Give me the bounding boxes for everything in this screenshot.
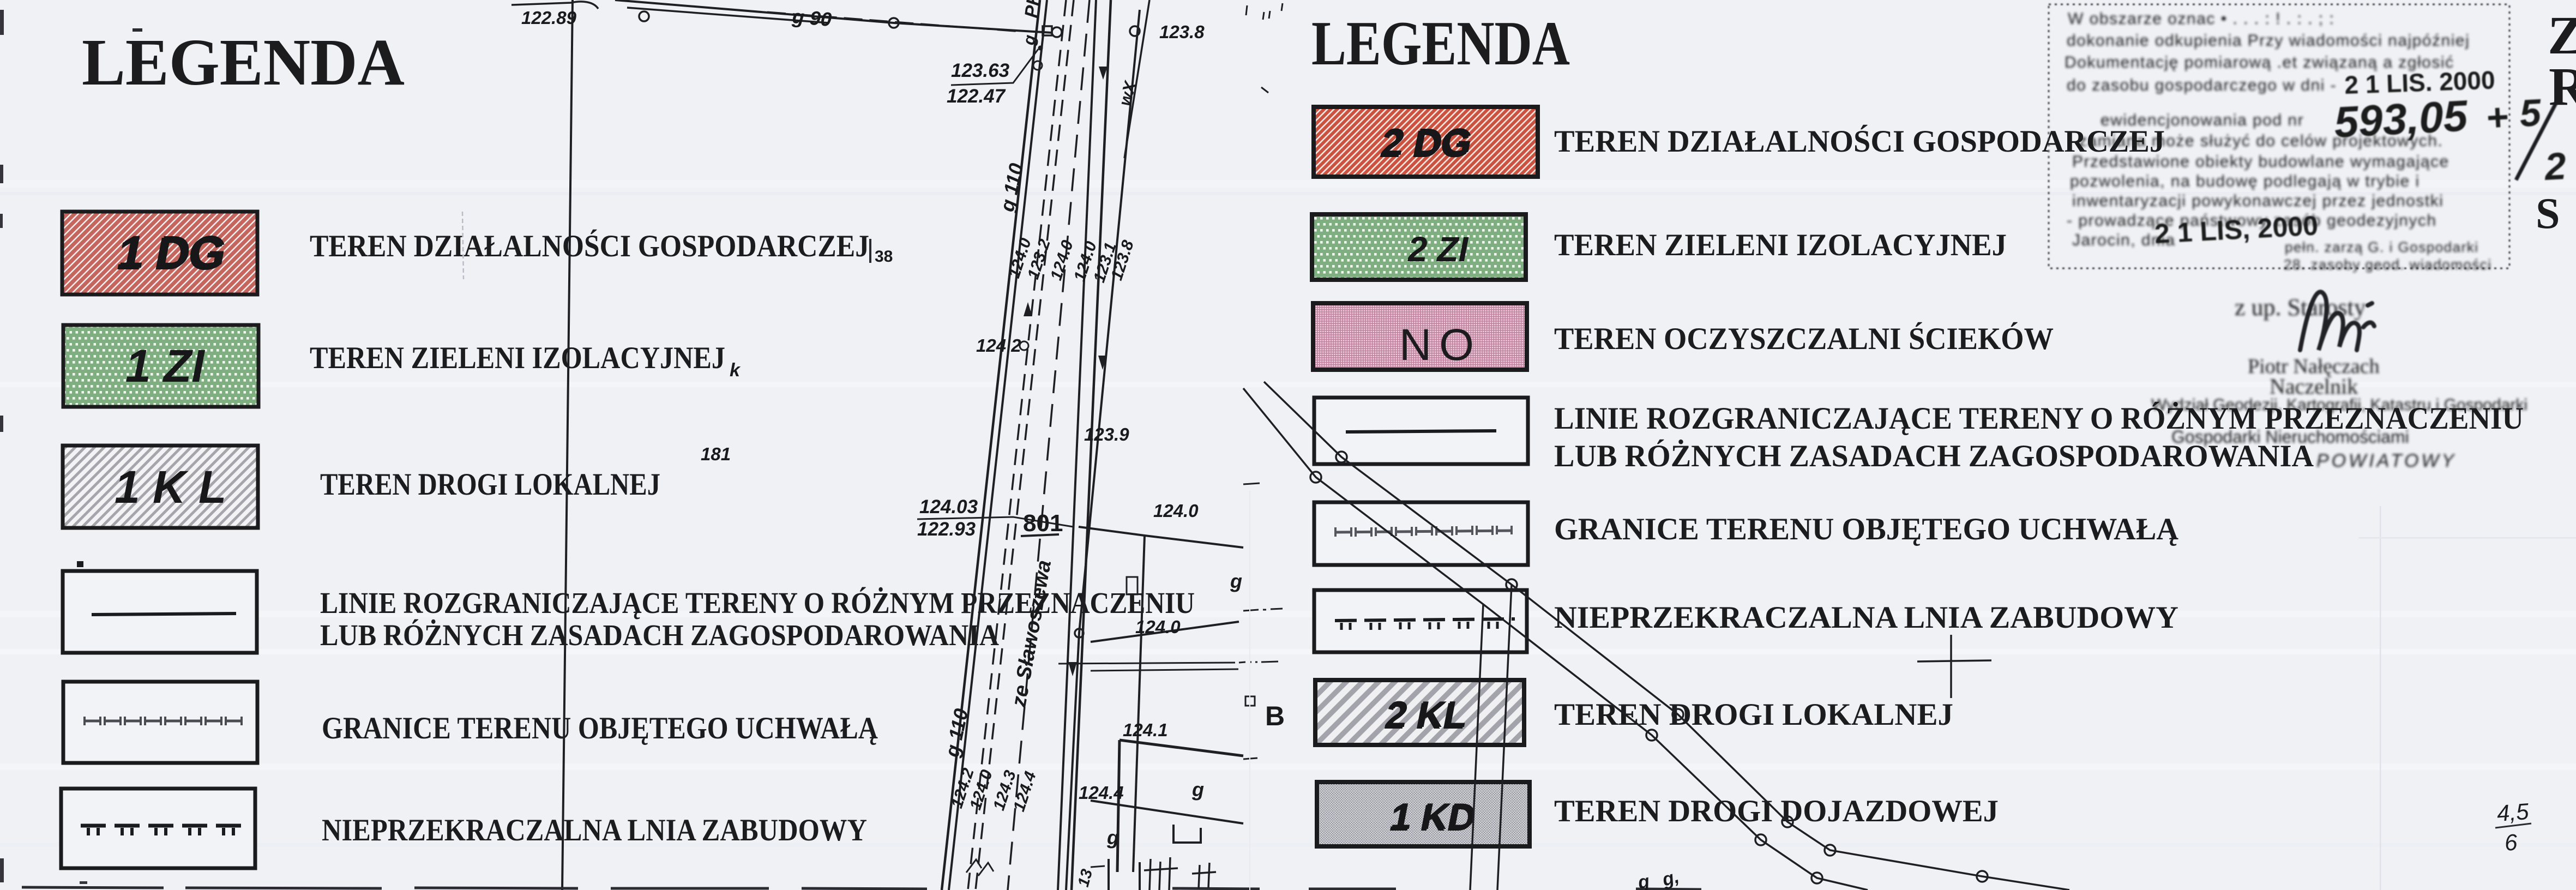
svg-text:NO: NO — [1399, 320, 1482, 370]
svg-text:pełn. zarzą G. i Gospodarki: pełn. zarzą G. i Gospodarki — [2285, 239, 2479, 255]
svg-text:122.89: 122.89 — [521, 8, 577, 28]
svg-text:2: 2 — [2543, 145, 2567, 188]
svg-text:NIEPRZEKRACZALNA LNIA ZABUDO: NIEPRZEKRACZALNA LNIA ZABUDOWY — [322, 813, 867, 847]
svg-text:S: S — [2536, 190, 2560, 238]
svg-text:LEGENDA: LEGENDA — [1311, 9, 1570, 78]
svg-text:LUB RÓŻNYCH ZASADACH ZAGOSPOD: LUB RÓŻNYCH ZASADACH ZAGOSPODAROWANIA — [320, 618, 999, 652]
svg-text:LINIE ROZGRANICZAJĄCE TERENY O: LINIE ROZGRANICZAJĄCE TERENY O RÓŻNYM PR… — [320, 586, 1195, 620]
svg-text:4,5: 4,5 — [2496, 798, 2530, 826]
svg-text:TEREN ZIELENI IZOLACYJNEJ: TEREN ZIELENI IZOLACYJNEJ — [310, 341, 725, 375]
svg-text:POWIATOWY: POWIATOWY — [2316, 450, 2457, 471]
svg-text:dokonanie odkupienia Przy: dokonanie odkupienia Przy wiadomości naj… — [2067, 32, 2470, 50]
svg-text:GRANICE TERENU OBJĘTEGO UCHWAŁ: GRANICE TERENU OBJĘTEGO UCHWAŁĄ — [1554, 512, 2178, 546]
svg-text:R: R — [2549, 56, 2576, 117]
svg-text:W obszarze oznac • . . .: W obszarze oznac • . . . : ! . : . ; : — [2068, 10, 2334, 28]
svg-text:ewidencjonowania pod nr: ewidencjonowania pod nr — [2100, 111, 2304, 129]
svg-text:pozwolenia, na budowę podlegaj: pozwolenia, na budowę podlegają w trybie… — [2070, 172, 2420, 190]
svg-text:+: + — [2485, 95, 2509, 139]
svg-text:g: g — [1106, 826, 1119, 849]
svg-text:2 DG: 2 DG — [1382, 121, 1472, 163]
svg-text:124 2: 124 2 — [976, 335, 1021, 356]
svg-text:2 ZI: 2 ZI — [1407, 230, 1468, 269]
svg-text:181: 181 — [701, 444, 731, 464]
svg-text:Naczelnik: Naczelnik — [2270, 374, 2358, 399]
svg-text:inwentaryzacji powykonawczej p: inwentaryzacji powykonawczej przez jedno… — [2072, 192, 2443, 210]
svg-text:124.1: 124.1 — [1123, 720, 1168, 740]
svg-text:593,05: 593,05 — [2333, 91, 2470, 147]
svg-text:NIEPRZEKRACZALNA LNIA ZABUDO: NIEPRZEKRACZALNA LNIA ZABUDOWY — [1554, 600, 2178, 635]
svg-text:124.03: 124.03 — [919, 496, 978, 518]
svg-text:28. zasoby geod. wiadomości: 28. zasoby geod. wiadomości — [2284, 256, 2492, 273]
svg-text:k: k — [730, 360, 741, 381]
svg-text:do zasobu gospodarczego w dni: do zasobu gospodarczego w dni - — [2067, 76, 2337, 94]
svg-text:38: 38 — [875, 248, 893, 266]
svg-text:TEREN DROGI LOKALNEJ: TEREN DROGI LOKALNEJ — [1554, 697, 1953, 732]
svg-text:5: 5 — [2519, 91, 2543, 135]
svg-text:g 90: g 90 — [791, 5, 832, 31]
svg-text:LEGENDA: LEGENDA — [82, 26, 405, 99]
svg-text:1 KD: 1 KD — [1391, 796, 1476, 837]
svg-text:122.47: 122.47 — [947, 86, 1006, 107]
svg-text:1 K L: 1 K L — [115, 461, 226, 513]
svg-text:122.93: 122.93 — [917, 519, 976, 540]
svg-text:Gospodarki Nieruchomościami: Gospodarki Nieruchomościami — [2171, 427, 2409, 447]
svg-text:801: 801 — [1023, 510, 1063, 537]
svg-text:GRANICE TERENU OBJĘTEGO UCHWAŁ: GRANICE TERENU OBJĘTEGO UCHWAŁĄ — [322, 711, 878, 745]
svg-text:Wydział Geodezji, Kartografii,: Wydział Geodezji, Kartografii, Katastru … — [2151, 396, 2527, 414]
svg-text:B: B — [1265, 701, 1285, 731]
svg-text:Przedstawione obiekty budowlan: Przedstawione obiekty budowlane wymagają… — [2072, 153, 2449, 171]
svg-text:g: g — [1230, 570, 1242, 592]
svg-text:123.8: 123.8 — [1159, 22, 1205, 42]
svg-text:124.0: 124.0 — [1153, 501, 1199, 521]
svg-text:TEREN ZIELENI IZOLACYJNEJ: TEREN ZIELENI IZOLACYJNEJ — [1554, 228, 2007, 262]
svg-text:TEREN DROGI LOKALNEJ: TEREN DROGI LOKALNEJ — [320, 467, 660, 502]
svg-text:123.9: 123.9 — [1084, 424, 1129, 444]
svg-text:g: g — [1191, 778, 1204, 801]
svg-text:2 KL: 2 KL — [1386, 694, 1467, 735]
svg-text:124.4: 124.4 — [1079, 783, 1124, 803]
svg-text:6: 6 — [2503, 829, 2518, 856]
svg-text:z up. Starosty: z up. Starosty — [2235, 294, 2366, 321]
svg-text:TEREN DZIAŁALNOŚCI GOSPODARCZE: TEREN DZIAŁALNOŚCI GOSPODARCZEJ — [310, 229, 869, 263]
svg-text:TEREN OCZYSZCZALNI ŚCIEKÓW: TEREN OCZYSZCZALNI ŚCIEKÓW — [1554, 322, 2054, 356]
svg-text:124.0: 124.0 — [1135, 617, 1181, 637]
svg-text:1 DG: 1 DG — [119, 226, 226, 278]
svg-text:1 ZI: 1 ZI — [125, 340, 205, 392]
svg-text:123.63: 123.63 — [951, 60, 1010, 81]
